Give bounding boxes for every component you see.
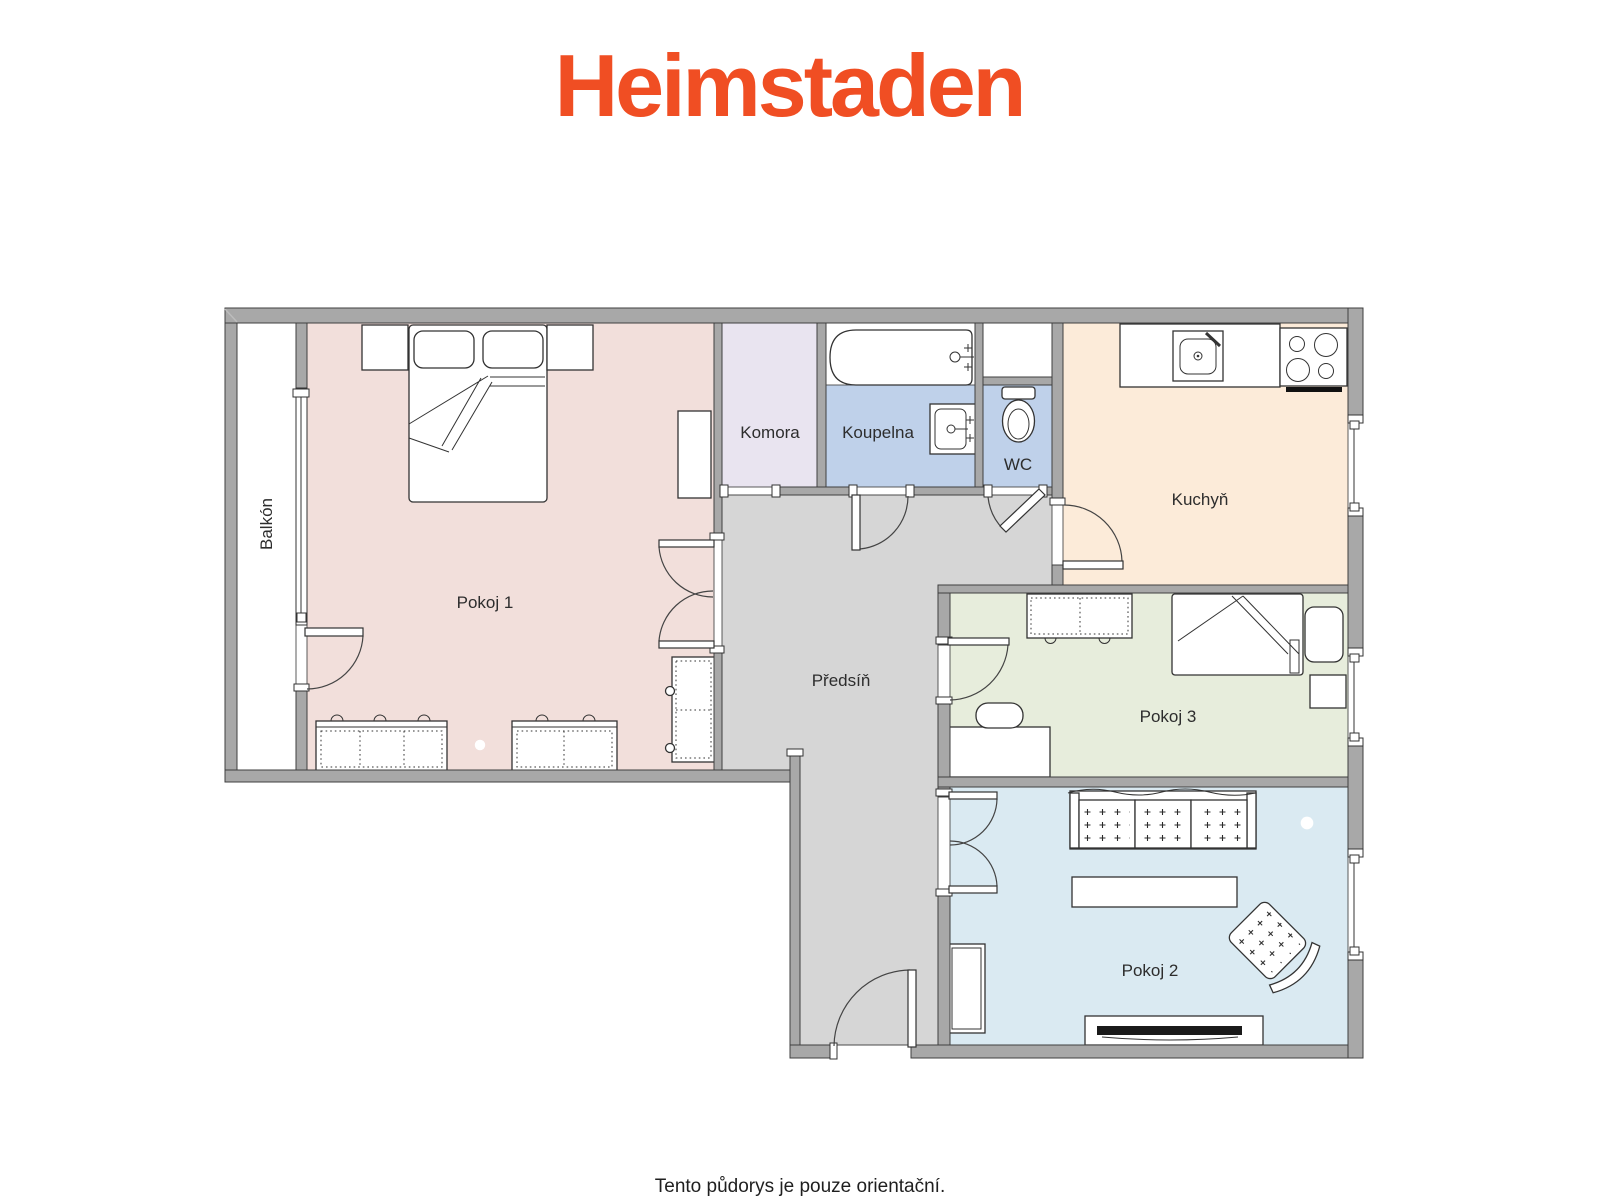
shelf <box>948 944 985 1033</box>
brand-logo: Heimstaden <box>555 36 1024 135</box>
wall-segment <box>790 752 800 1048</box>
wall-segment <box>938 585 1348 593</box>
wall-segment <box>975 323 983 487</box>
room-label-balkon: Balkón <box>257 498 276 550</box>
pillow <box>414 331 474 368</box>
pillow <box>483 331 543 368</box>
door-leaf <box>305 628 363 636</box>
stove <box>1280 328 1347 392</box>
room-label-kuchyn: Kuchyň <box>1172 490 1229 509</box>
sideboard <box>316 715 447 771</box>
wall-segment <box>817 323 826 487</box>
wall-segment <box>296 323 307 390</box>
room-label-koupelna: Koupelna <box>842 423 914 442</box>
wall-segment <box>790 1045 833 1058</box>
dresser <box>1027 594 1132 644</box>
room-label-pokoj3: Pokoj 3 <box>1140 707 1197 726</box>
cabinet <box>666 657 716 762</box>
room-label-komora: Komora <box>740 423 800 442</box>
toilet <box>1002 387 1035 442</box>
wall-segment <box>1348 745 1363 851</box>
sofa <box>1068 789 1256 849</box>
nightstand <box>547 325 593 370</box>
sideboard <box>512 715 617 771</box>
wall-segment <box>1052 323 1063 505</box>
wall-segment <box>1348 515 1363 650</box>
wall-segment <box>296 690 307 770</box>
room-label-pokoj1: Pokoj 1 <box>457 593 514 612</box>
kitchen-window <box>1348 415 1363 516</box>
floor-plan-page: Heimstaden <box>0 0 1600 1200</box>
tv-stand <box>1085 1016 1263 1045</box>
wall-segment <box>938 777 1348 787</box>
wall-segment <box>714 648 722 770</box>
wall-segment <box>938 893 950 1045</box>
pokoj3-window <box>1348 648 1363 746</box>
room-label-wc: WC <box>1004 455 1032 474</box>
door-leaf <box>908 970 916 1047</box>
wc-shaft <box>983 323 1052 377</box>
kitchen-sink <box>1173 331 1223 381</box>
coffee-table <box>1072 877 1237 907</box>
floor-plan: Heimstaden <box>0 0 1600 1200</box>
room-komora <box>722 323 817 487</box>
wall-segment <box>225 323 237 782</box>
desk <box>948 727 1050 777</box>
pokoj2-window <box>1348 849 1363 960</box>
door-leaf <box>1063 561 1123 569</box>
wall-segment <box>776 487 853 495</box>
disclaimer-text: Tento půdorys je pouze orientační. <box>655 1176 945 1197</box>
nightstand <box>1310 675 1346 708</box>
pillow <box>1305 607 1343 662</box>
wall-segment <box>910 487 988 495</box>
wall-segment <box>225 770 800 782</box>
room-label-pokoj2: Pokoj 2 <box>1122 961 1179 980</box>
wardrobe <box>678 411 711 498</box>
door-leaf <box>659 641 714 648</box>
wall-segment <box>911 1045 1363 1058</box>
door-leaf <box>852 495 860 550</box>
door-leaf <box>949 886 997 893</box>
wall-segment <box>1348 308 1363 417</box>
wall-segment <box>714 323 722 540</box>
wall-segment <box>1052 565 1063 585</box>
door-leaf <box>948 638 1009 645</box>
stove-edge <box>1286 387 1342 392</box>
tv <box>1097 1026 1242 1035</box>
door-leaf <box>659 540 714 547</box>
double-bed <box>409 325 547 502</box>
wall-segment <box>983 377 1052 385</box>
door-leaf <box>949 792 997 799</box>
desk-chair <box>976 703 1023 728</box>
nightstand <box>362 325 408 370</box>
washbasin <box>930 404 976 454</box>
room-label-predsin: Předsíň <box>812 671 871 690</box>
wall-segment <box>225 308 1363 323</box>
wall-segment <box>1348 960 1363 1058</box>
bathtub <box>830 330 974 385</box>
